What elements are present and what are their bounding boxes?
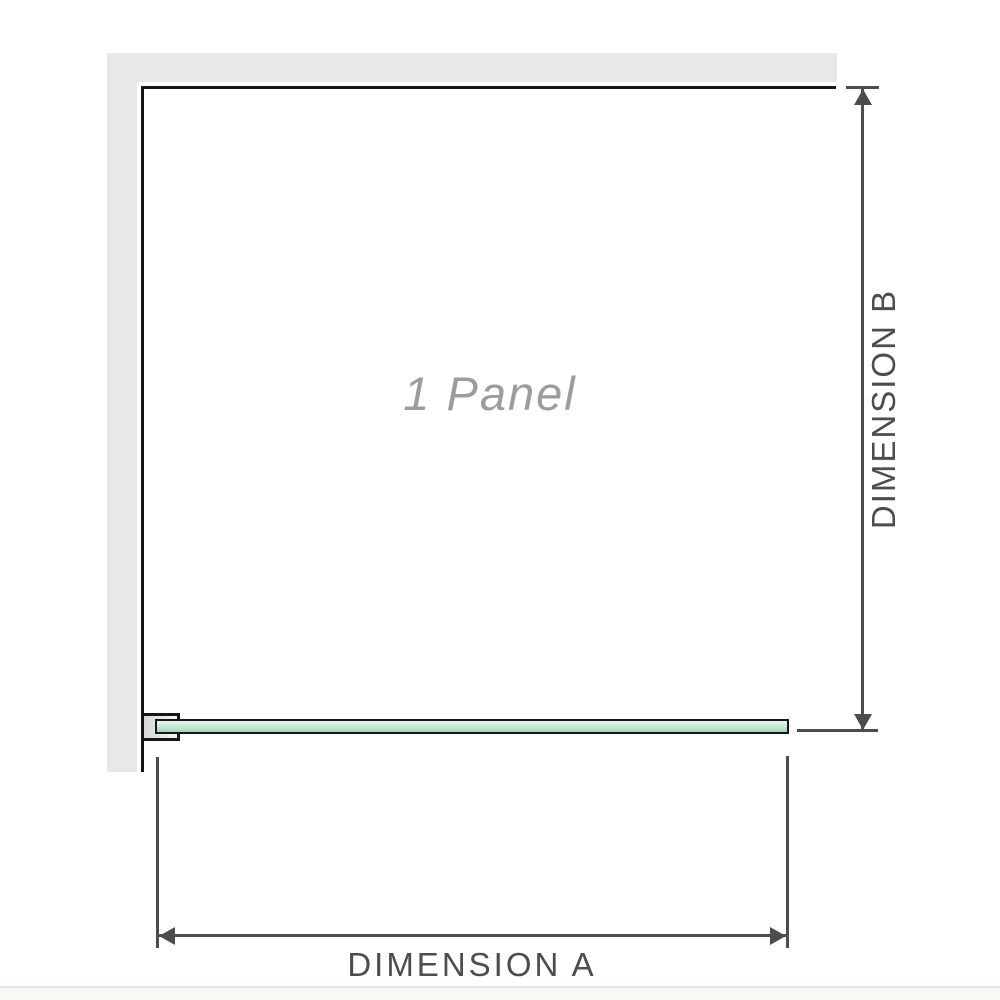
dimension-diagram: 1 Panel DIMENSION B DIMENSION A [0,0,1000,1000]
dimension-b-arrow-down-icon [854,714,872,730]
dimension-b-arrow-up-icon [854,89,872,105]
dimension-a-label: DIMENSION A [157,946,787,984]
panel-count-label: 1 Panel [143,366,837,421]
dimension-a-line [159,934,786,937]
dimension-a-arrow-left-icon [159,927,175,945]
dimension-a-left-extension-line [156,757,159,948]
dimension-a-right-extension-line [786,756,789,948]
dimension-b-line [861,88,864,731]
dimension-a-arrow-right-icon [770,927,786,945]
glass-panel [155,719,789,734]
back-wall [107,53,837,82]
side-wall-edge-line [141,86,144,772]
dimension-b-label: DIMENSION B [865,289,903,529]
side-wall [107,53,137,772]
background-floor-area [0,988,1000,1000]
back-wall-edge-line [143,86,836,89]
